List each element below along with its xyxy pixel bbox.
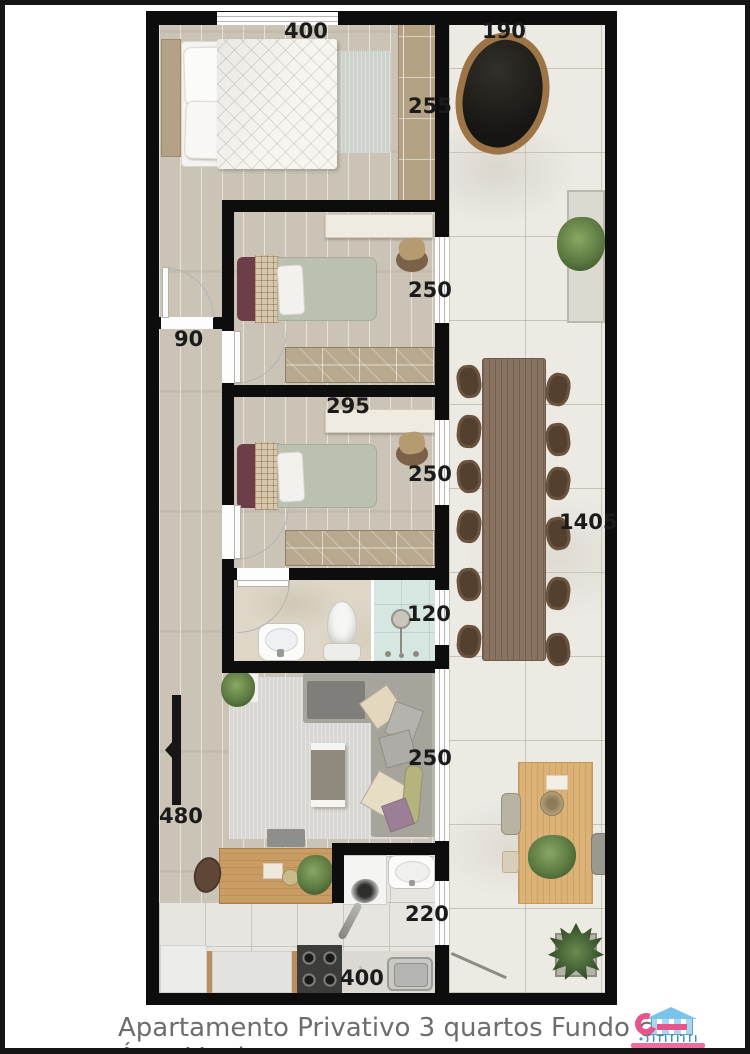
bathroom-door-opening bbox=[237, 568, 289, 580]
wall-divider-patio bbox=[435, 11, 449, 1005]
bedroom3-door-opening bbox=[222, 505, 234, 559]
chair-cushion bbox=[502, 851, 519, 873]
sink-faucet-icon bbox=[409, 880, 415, 886]
sofa-seat-cushion bbox=[307, 681, 365, 719]
dimension-label-kitchen-service: 220 bbox=[405, 904, 449, 925]
bedroom2-pillow bbox=[277, 264, 306, 315]
shower-valve-icon bbox=[385, 651, 391, 657]
dimension-label-master-width: 400 bbox=[284, 21, 328, 42]
coffee-table bbox=[311, 743, 345, 807]
patio-long-table bbox=[482, 358, 546, 661]
wall-right bbox=[605, 11, 617, 1005]
bedroom2-bed-headboard bbox=[237, 257, 257, 321]
bedroom3-pillow bbox=[277, 451, 306, 502]
desk-paper bbox=[546, 775, 568, 790]
desk-chair-left bbox=[501, 793, 521, 835]
desk-bowl bbox=[540, 791, 564, 816]
wall-master-bedroom2 bbox=[222, 200, 449, 212]
shower-pipe bbox=[400, 627, 402, 653]
tv-mount-icon bbox=[165, 741, 173, 759]
kitchen-cabinet bbox=[212, 951, 292, 993]
shower-glass-divider bbox=[371, 580, 374, 661]
dimension-label-hallway-width: 90 bbox=[174, 329, 203, 350]
dimension-label-bedroom2-depth: 250 bbox=[408, 280, 452, 301]
dimension-label-kitchen-width: 400 bbox=[340, 968, 384, 989]
bedroom2-wardrobe bbox=[285, 347, 435, 383]
sink-faucet-icon bbox=[277, 649, 284, 657]
toilet-bowl bbox=[327, 601, 357, 649]
dimension-label-patio-top: 190 bbox=[482, 21, 526, 42]
bedroom3-bed-headboard bbox=[237, 444, 257, 508]
table-tray bbox=[263, 863, 283, 879]
dimension-label-living-width: 480 bbox=[159, 806, 203, 827]
bedroom3-wardrobe bbox=[285, 530, 435, 566]
wall-laundry-top bbox=[332, 843, 449, 855]
wall-hallway bbox=[222, 200, 234, 673]
floor-plan-page: 400 190 255 250 90 295 250 1405 120 250 … bbox=[0, 0, 750, 1054]
wall-left bbox=[146, 11, 159, 1005]
dimension-label-living-depth: 250 bbox=[408, 748, 452, 769]
bedroom2-door-opening bbox=[222, 331, 234, 383]
patio-chair bbox=[456, 459, 483, 494]
bedroom2-desk bbox=[325, 214, 433, 238]
dimension-label-master-depth: 255 bbox=[408, 96, 452, 117]
logo-script-text bbox=[637, 1035, 699, 1042]
wall-laundry-left bbox=[332, 843, 344, 903]
dimension-label-patio-length: 1405 bbox=[559, 512, 617, 533]
dimension-label-bedroom3-depth: 250 bbox=[408, 464, 452, 485]
bedroom3-bed-blanket bbox=[255, 442, 279, 510]
console-table bbox=[267, 829, 305, 847]
master-wardrobe bbox=[161, 39, 181, 157]
tv-panel bbox=[172, 695, 181, 805]
kitchen-cabinet bbox=[160, 945, 207, 993]
dimension-label-bathroom-width: 120 bbox=[407, 604, 451, 625]
wall-bottom bbox=[146, 993, 617, 1005]
dimension-label-bedroom3-width: 295 bbox=[326, 396, 370, 417]
stove bbox=[297, 945, 342, 993]
kitchen-sink-bowl bbox=[394, 963, 428, 987]
logo-pink-band bbox=[657, 1024, 687, 1030]
bed-duvet bbox=[217, 39, 337, 169]
toilet-base bbox=[323, 643, 361, 661]
bedroom2-bed-blanket bbox=[255, 255, 279, 323]
shower-valve-icon bbox=[413, 651, 419, 657]
wall-bathroom-living bbox=[222, 661, 449, 673]
logo-underline-bar bbox=[631, 1043, 705, 1048]
shower-valve-icon bbox=[399, 653, 404, 658]
brand-logo bbox=[623, 1005, 713, 1051]
